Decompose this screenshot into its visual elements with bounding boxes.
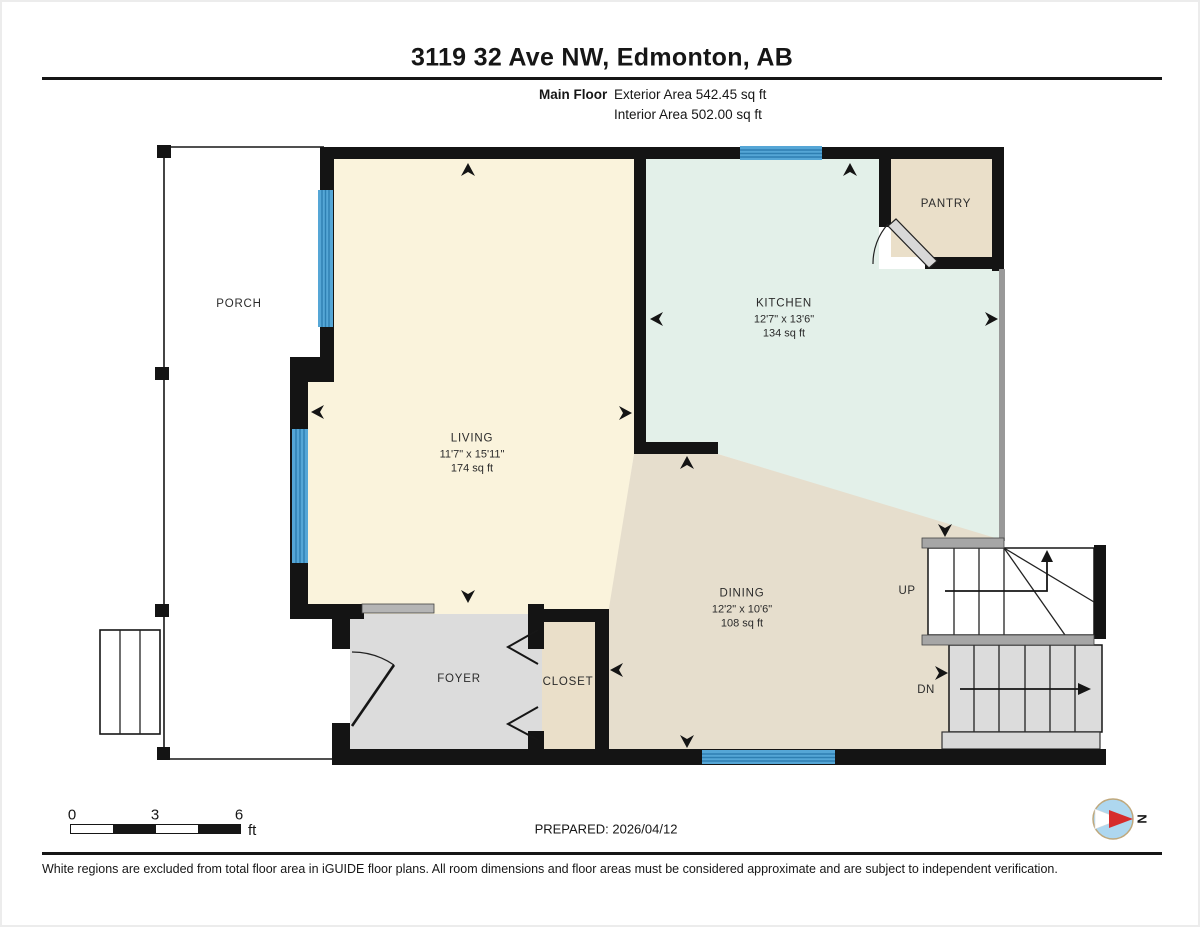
interior-area: Interior Area 502.00 sq ft (614, 107, 762, 122)
stair-rail-top (922, 538, 1004, 548)
porch-post (155, 367, 169, 380)
floor-plan-page: 3119 32 Ave NW, Edmonton, AB Main Floor … (0, 0, 1200, 927)
disclaimer-text: White regions are excluded from total fl… (42, 862, 1058, 876)
compass-icon (1093, 799, 1133, 839)
stair-landing (942, 732, 1100, 749)
room-label-pantry: PANTRY (921, 197, 971, 213)
porch-post (157, 747, 170, 760)
dining-window (702, 750, 835, 764)
room-label-living: LIVING 11'7" x 15'11" 174 sq ft (440, 431, 505, 476)
exterior-area: Exterior Area 542.45 sq ft (614, 87, 766, 102)
header-divider (42, 77, 1162, 80)
room-label-closet: CLOSET (543, 675, 594, 691)
footer-divider (42, 852, 1162, 855)
scale-tick-3: 3 (151, 807, 159, 824)
stairs-up-label: UP (899, 585, 916, 597)
living-window-upper (318, 190, 333, 327)
kitchen-window (740, 146, 822, 160)
living-room-area (308, 159, 634, 614)
compass-north-label: N (1135, 814, 1150, 823)
kitchen-open-wall (999, 269, 1005, 541)
room-label-kitchen: KITCHEN 12'7" x 13'6" 134 sq ft (754, 296, 814, 341)
floor-plan-drawing (2, 2, 1200, 927)
stairs-down-label: DN (917, 684, 935, 696)
exterior-steps (100, 630, 160, 734)
scale-bar (70, 824, 241, 834)
room-label-porch: PORCH (216, 297, 262, 313)
prepared-date: PREPARED: 2026/04/12 (535, 822, 678, 837)
page-title: 3119 32 Ave NW, Edmonton, AB (411, 44, 793, 73)
foyer-rail (362, 604, 434, 613)
room-label-dining: DINING 12'2" x 10'6" 108 sq ft (712, 586, 772, 631)
stairs-up (928, 548, 1094, 635)
porch-post (157, 145, 171, 158)
room-fills (308, 159, 1002, 750)
porch-post (155, 604, 169, 617)
stairs-down (942, 645, 1102, 749)
scale-tick-0: 0 (68, 807, 76, 824)
scale-tick-6: 6 (235, 807, 243, 824)
living-window-lower (292, 429, 308, 563)
room-label-foyer: FOYER (437, 672, 481, 688)
stair-rail-mid (922, 635, 1094, 645)
floor-label: Main Floor (539, 87, 607, 102)
scale-unit: ft (248, 822, 256, 839)
